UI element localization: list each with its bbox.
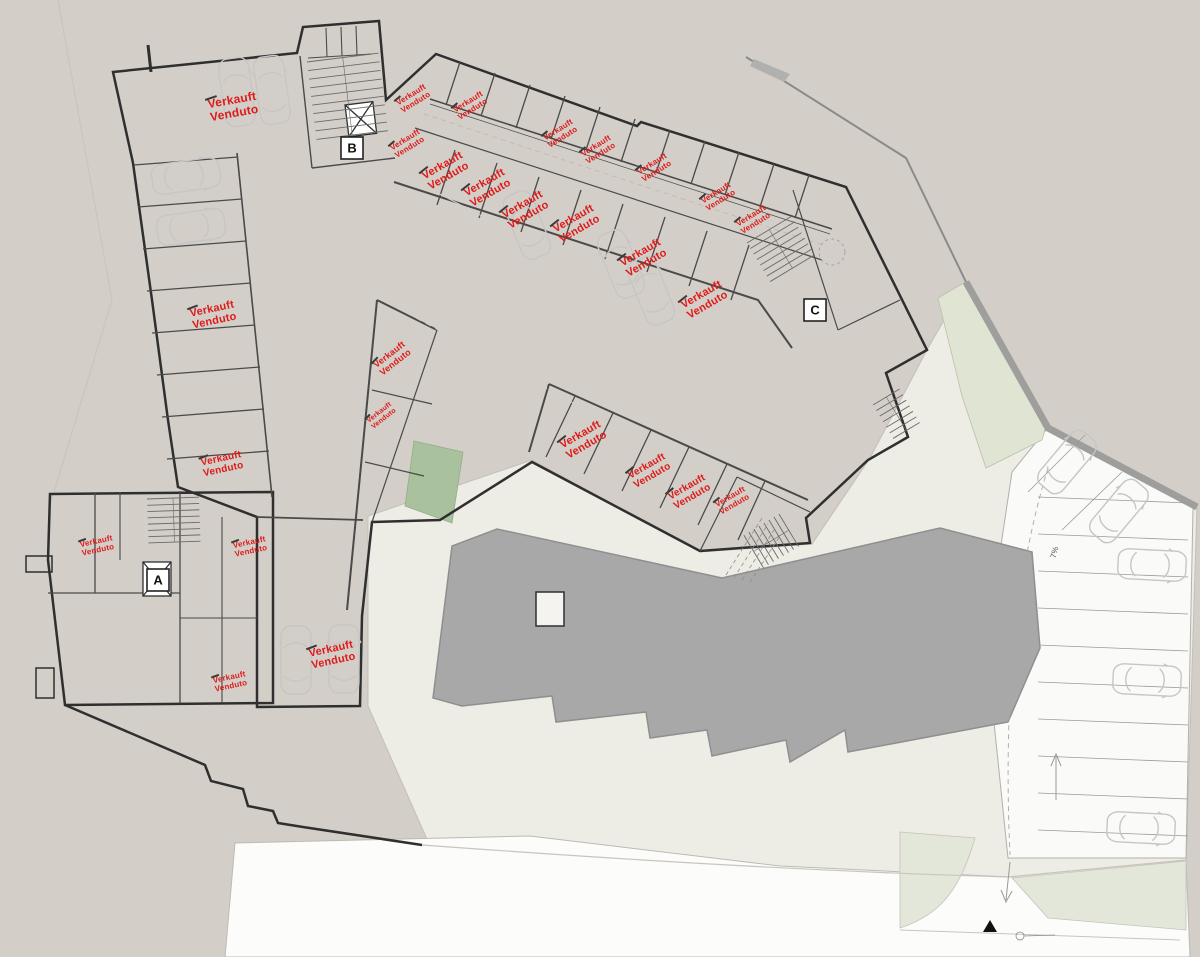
stairwell-letter-text: B (347, 141, 356, 156)
stairwell-letter-B: B (341, 137, 363, 159)
stairwell-letter-text: C (810, 303, 820, 318)
stairwell-letter-C: C (804, 299, 826, 321)
skylight-shaft (536, 592, 564, 626)
stairwell-letter-text: A (153, 573, 163, 588)
site-plan-page: VerkauftVendutoVerkauftVendutoVerkauftVe… (0, 0, 1200, 957)
stairwell-letter-A: A (147, 569, 169, 591)
site-plan-canvas: VerkauftVendutoVerkauftVendutoVerkauftVe… (0, 0, 1200, 957)
